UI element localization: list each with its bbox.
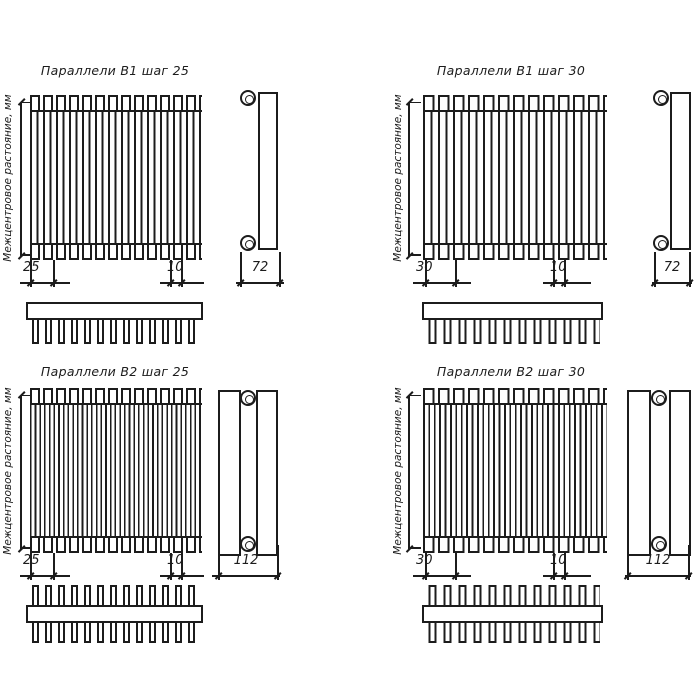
drawing-b1-step-25: Параллели В1 шаг 25 Межцентровое растоян… bbox=[0, 55, 308, 357]
dimension-line bbox=[408, 102, 410, 255]
collector-line-top bbox=[30, 403, 202, 405]
tube-array bbox=[30, 403, 202, 538]
tube-row bbox=[425, 320, 600, 344]
center-distance-label: Межцентровое растояние, мм bbox=[392, 93, 406, 263]
pipe-port-top bbox=[653, 90, 669, 106]
dimension-value: 30 bbox=[416, 260, 433, 275]
collector-bar bbox=[26, 302, 203, 320]
collector-bar bbox=[422, 302, 603, 320]
center-distance-dimension-line bbox=[408, 395, 422, 548]
side-body bbox=[258, 92, 278, 250]
radiator-top-view bbox=[422, 585, 603, 645]
tube-row-back bbox=[29, 585, 200, 605]
pipe-port-top bbox=[651, 390, 667, 406]
view-title: Параллели В1 шаг 25 bbox=[15, 63, 215, 78]
dimension-end-offset: 10 bbox=[160, 260, 204, 294]
center-distance-label: Межцентровое растояние, мм bbox=[2, 386, 16, 556]
dimension-step: 25 bbox=[20, 260, 70, 294]
dimension-depth: 72 bbox=[236, 260, 284, 294]
dimension-value: 112 bbox=[625, 553, 691, 568]
dimension-line bbox=[20, 102, 22, 255]
tube-caps-bottom bbox=[423, 538, 607, 553]
side-body-front-row bbox=[627, 390, 651, 556]
dimension-value: 112 bbox=[212, 553, 280, 568]
tube-row-front bbox=[425, 623, 600, 643]
dimension-line bbox=[413, 575, 471, 577]
radiator-top-view bbox=[422, 302, 603, 346]
collector-line-top bbox=[30, 110, 202, 112]
dimension-depth: 112 bbox=[625, 553, 691, 587]
dimension-line bbox=[20, 395, 22, 548]
dimension-depth: 112 bbox=[212, 553, 280, 587]
tube-array bbox=[423, 110, 607, 245]
dimension-value: 10 bbox=[167, 260, 184, 275]
collector-line-top bbox=[423, 403, 607, 405]
radiator-side-view bbox=[214, 383, 282, 559]
radiator-top-view bbox=[26, 585, 203, 645]
radiator-front-view bbox=[423, 388, 607, 553]
collector-bar bbox=[422, 605, 603, 623]
radiator-side-view bbox=[620, 383, 692, 559]
dimension-end-offset: 10 bbox=[543, 260, 591, 294]
tube-row bbox=[29, 320, 200, 344]
center-distance-label: Межцентровое растояние, мм bbox=[2, 93, 16, 263]
radiator-front-view bbox=[30, 95, 202, 260]
side-body-front-row bbox=[218, 390, 241, 556]
drawing-b2-step-25: Параллели В2 шаг 25 Межцентровое растоян… bbox=[0, 358, 308, 660]
side-body bbox=[670, 92, 691, 250]
side-body-back-row bbox=[669, 390, 691, 556]
tube-caps-bottom bbox=[423, 245, 607, 260]
dimension-value: 25 bbox=[23, 553, 40, 568]
dimension-end-offset: 10 bbox=[160, 553, 204, 587]
dimension-end-offset: 10 bbox=[543, 553, 591, 587]
dimension-value: 25 bbox=[23, 260, 40, 275]
pipe-port-top bbox=[240, 390, 256, 406]
pipe-port-bottom bbox=[240, 235, 256, 251]
dimension-line bbox=[408, 395, 410, 548]
dimension-value: 30 bbox=[416, 553, 433, 568]
tube-caps-top bbox=[30, 95, 202, 110]
dimension-step: 30 bbox=[413, 553, 471, 587]
dimension-value: 10 bbox=[167, 553, 184, 568]
dimension-step: 25 bbox=[20, 553, 70, 587]
radiator-top-view bbox=[26, 302, 203, 346]
collector-line-top bbox=[423, 110, 607, 112]
center-distance-dimension-line bbox=[408, 102, 422, 255]
tube-array bbox=[30, 110, 202, 245]
dimension-value: 72 bbox=[652, 260, 692, 275]
tube-row-front bbox=[29, 623, 200, 643]
dimension-depth: 72 bbox=[652, 260, 692, 294]
dimension-line bbox=[413, 282, 471, 284]
tube-caps-top bbox=[423, 95, 607, 110]
drawing-b2-step-30: Параллели В2 шаг 30 Межцентровое растоян… bbox=[395, 358, 700, 660]
radiator-side-view bbox=[240, 90, 286, 260]
center-distance-label: Межцентровое растояние, мм bbox=[392, 386, 406, 556]
pipe-port-top bbox=[240, 90, 256, 106]
tube-caps-bottom bbox=[30, 245, 202, 260]
dimension-value: 10 bbox=[550, 260, 567, 275]
drawing-b1-step-30: Параллели В1 шаг 30 Межцентровое растоян… bbox=[395, 55, 700, 357]
view-title: Параллели В1 шаг 30 bbox=[411, 63, 611, 78]
radiator-front-view bbox=[30, 388, 202, 553]
pipe-port-bottom bbox=[653, 235, 669, 251]
tube-caps-top bbox=[30, 388, 202, 403]
dimension-value: 10 bbox=[550, 553, 567, 568]
radiator-front-view bbox=[423, 95, 607, 260]
radiator-side-view bbox=[653, 90, 699, 260]
view-title: Параллели В2 шаг 25 bbox=[15, 364, 215, 379]
tube-array bbox=[423, 403, 607, 538]
pipe-port-bottom bbox=[240, 536, 256, 552]
dimension-line bbox=[625, 575, 691, 577]
side-body-back-row bbox=[256, 390, 278, 556]
view-title: Параллели В2 шаг 30 bbox=[411, 364, 611, 379]
collector-bar bbox=[26, 605, 203, 623]
tube-row-back bbox=[425, 585, 600, 605]
dimension-line bbox=[212, 575, 280, 577]
dimension-value: 72 bbox=[236, 260, 284, 275]
technical-drawing-canvas: Параллели В1 шаг 25 Межцентровое растоян… bbox=[0, 0, 700, 700]
pipe-port-bottom bbox=[651, 536, 667, 552]
dimension-step: 30 bbox=[413, 260, 471, 294]
tube-caps-top bbox=[423, 388, 607, 403]
tube-caps-bottom bbox=[30, 538, 202, 553]
